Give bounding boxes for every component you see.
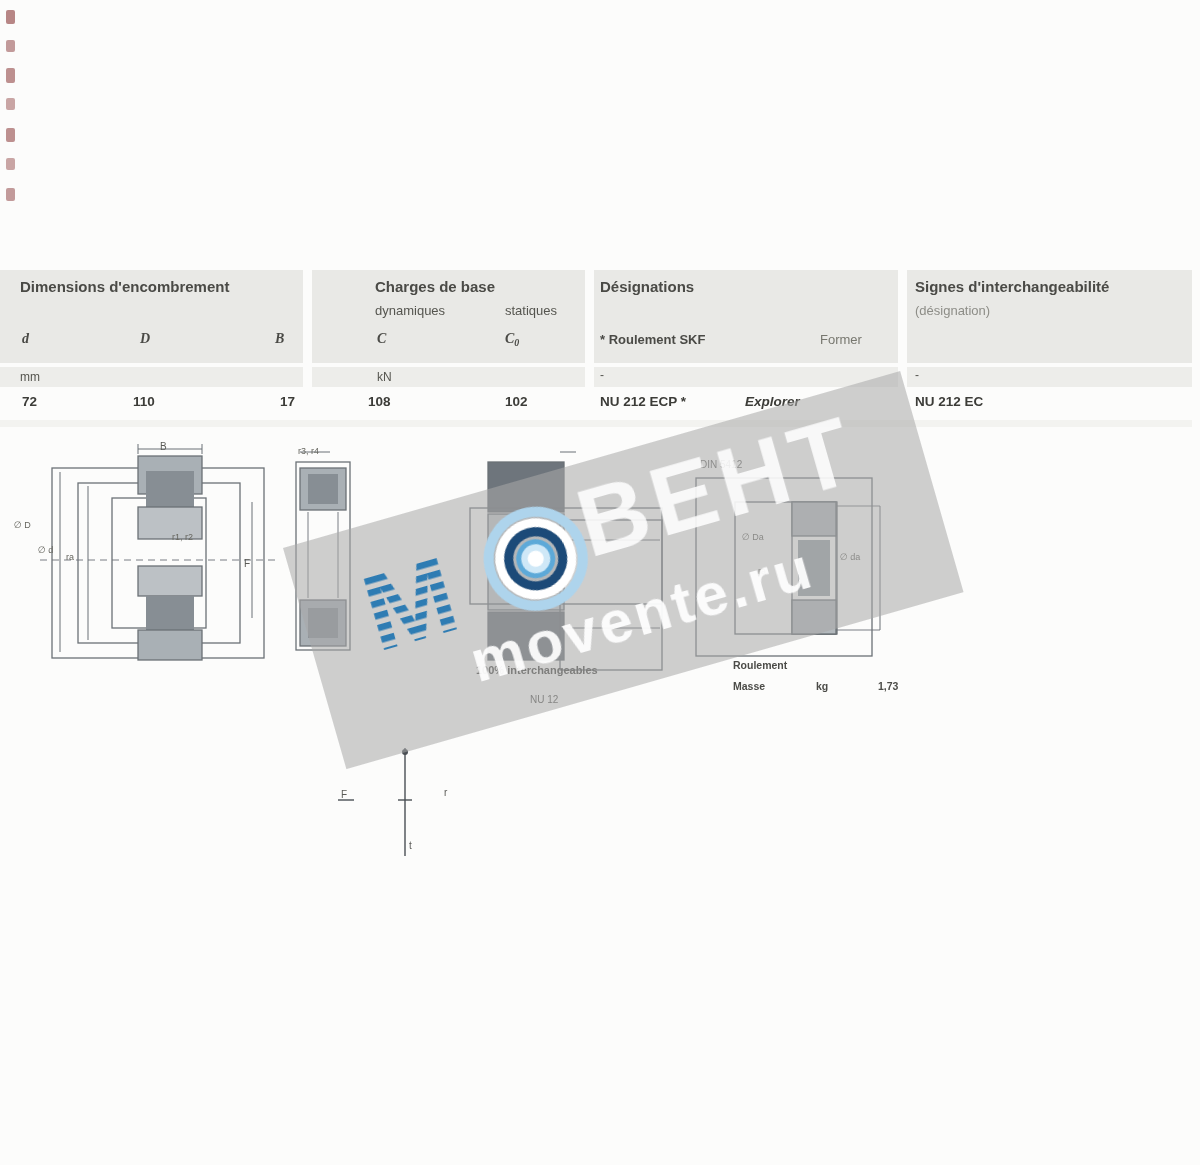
cell-designation-skf: NU 212 ECP *: [600, 394, 686, 409]
cell-interchange: NU 212 EC: [915, 394, 983, 409]
col-D: D: [140, 331, 150, 347]
watermark-letter-m: М: [350, 533, 470, 668]
subheader-dynamic: dynamiques: [375, 303, 445, 318]
unit-kN: kN: [377, 370, 392, 384]
col-C0: C0: [505, 331, 519, 348]
col-C: C: [377, 331, 386, 347]
unit-dash: -: [915, 368, 919, 382]
cell-C: 108: [368, 394, 391, 409]
column-separator: [303, 268, 312, 389]
cell-B: 17: [280, 394, 295, 409]
header-dimensions: Dimensions d'encombrement: [20, 278, 229, 295]
table-under-strip: [0, 420, 1192, 427]
col-C0-sub: 0: [514, 337, 519, 348]
col-C0-main: C: [505, 331, 514, 346]
header-interchange: Signes d'interchangeabilité: [915, 278, 1109, 295]
table-units-band: [0, 367, 1192, 387]
unit-dash: -: [600, 368, 604, 382]
subheader-static: statiques: [505, 303, 557, 318]
catalog-page: B ∅ D ∅ d F r1, r2 ra r3, r4 100% interc…: [0, 0, 1200, 1165]
subheader-skf: * Roulement SKF: [600, 332, 705, 347]
subheader-interchange: (désignation): [915, 303, 990, 318]
header-designations: Désignations: [600, 278, 694, 295]
col-d: d: [22, 331, 29, 347]
cell-d: 72: [22, 394, 37, 409]
column-separator: [585, 268, 594, 389]
subheader-former: Former: [820, 332, 862, 347]
col-B: B: [275, 331, 284, 347]
unit-mm: mm: [20, 370, 40, 384]
cell-D: 110: [133, 394, 155, 409]
header-loads: Charges de base: [375, 278, 495, 295]
cell-C0: 102: [505, 394, 528, 409]
